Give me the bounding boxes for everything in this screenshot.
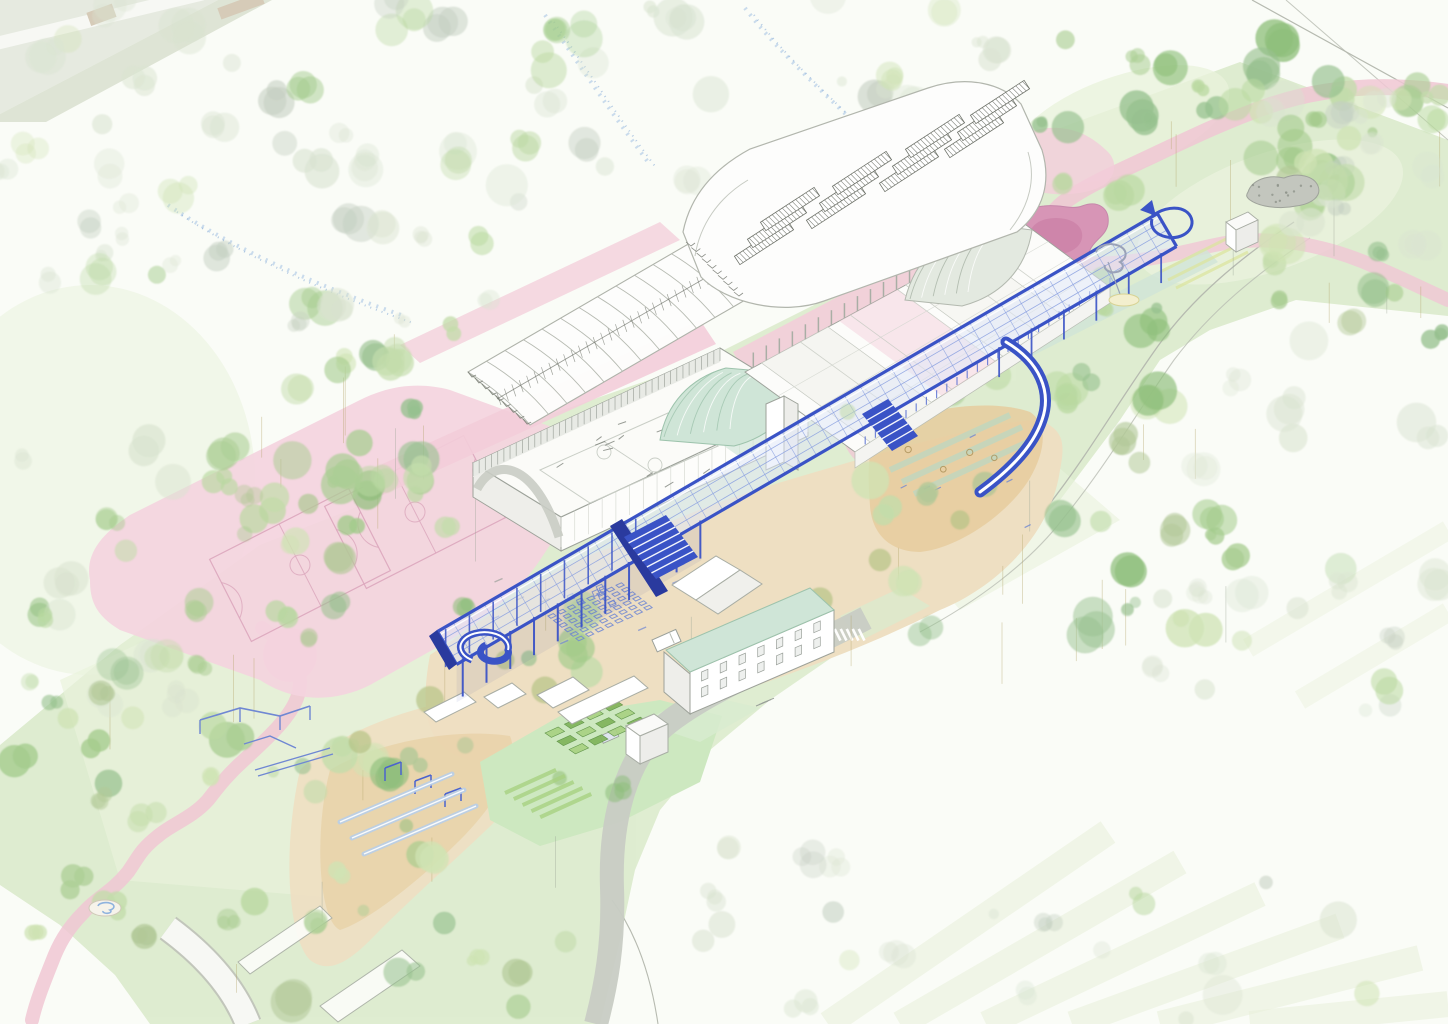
tree-canopy xyxy=(292,317,307,332)
tree-canopy xyxy=(1054,383,1081,410)
rock-dot xyxy=(1285,191,1287,193)
tree-canopy xyxy=(1204,952,1227,975)
tree-canopy xyxy=(1122,603,1134,615)
tree-canopy xyxy=(310,918,325,933)
tree-canopy xyxy=(281,535,300,554)
tree-canopy xyxy=(329,592,350,613)
tree-canopy xyxy=(506,995,530,1019)
tree-canopy xyxy=(399,315,411,327)
tree-canopy xyxy=(415,841,446,872)
tree-canopy xyxy=(80,217,101,238)
tree-canopy xyxy=(675,169,700,194)
tree-canopy xyxy=(403,463,433,493)
tree-canopy xyxy=(1152,665,1169,682)
tree-canopy xyxy=(837,76,847,86)
tree-canopy xyxy=(130,803,153,826)
tree-canopy xyxy=(1320,901,1357,938)
tree-canopy xyxy=(39,272,61,294)
tree-canopy xyxy=(88,729,111,752)
tree-canopy xyxy=(61,864,85,888)
tree-canopy xyxy=(1363,91,1385,113)
tree-canopy xyxy=(468,226,488,246)
tree-canopy xyxy=(301,631,317,647)
tree-canopy xyxy=(260,483,289,512)
tree-canopy xyxy=(1305,111,1321,127)
tree-canopy xyxy=(486,164,528,206)
tree-canopy xyxy=(1244,141,1279,176)
rock-dot xyxy=(1300,185,1302,187)
tree-canopy xyxy=(1361,132,1383,154)
tree-canopy xyxy=(208,438,240,470)
tree-canopy xyxy=(1093,941,1110,958)
tree-canopy xyxy=(443,316,459,332)
tree-canopy xyxy=(1380,628,1396,644)
tree-canopy xyxy=(25,41,57,73)
tree-canopy xyxy=(1371,668,1397,694)
tree-canopy xyxy=(290,71,317,98)
rock-dot xyxy=(1275,201,1277,203)
tree-canopy xyxy=(1034,913,1053,932)
tree-canopy xyxy=(400,747,418,765)
tree-canopy xyxy=(1325,101,1352,128)
tree-canopy xyxy=(474,949,490,965)
tree-canopy xyxy=(298,494,318,514)
tree-canopy xyxy=(839,950,859,970)
tree-canopy xyxy=(1427,109,1448,131)
tree-canopy xyxy=(1056,30,1075,49)
tree-canopy xyxy=(1195,679,1215,699)
tree-canopy xyxy=(216,468,232,484)
tree-canopy xyxy=(241,493,255,507)
tree-canopy xyxy=(873,504,895,526)
tree-canopy xyxy=(295,758,311,774)
tree-canopy xyxy=(131,928,147,944)
tree-canopy xyxy=(886,67,903,84)
tree-canopy xyxy=(1259,876,1273,890)
tree-canopy xyxy=(337,515,357,535)
tree-canopy xyxy=(241,888,269,916)
tree-canopy xyxy=(115,540,137,562)
tree-canopy xyxy=(179,176,198,195)
tree-canopy xyxy=(1049,505,1081,537)
tree-canopy xyxy=(400,819,414,833)
tree-canopy xyxy=(1203,975,1243,1015)
tree-canopy xyxy=(518,131,541,154)
tree-canopy xyxy=(693,76,729,112)
tree-canopy xyxy=(186,601,207,622)
tree-canopy xyxy=(1131,109,1158,136)
tree-canopy xyxy=(1386,284,1404,302)
rock-dot xyxy=(1287,194,1289,196)
tree-canopy xyxy=(1189,613,1223,647)
tree-canopy xyxy=(367,212,400,245)
rock-dot xyxy=(1271,194,1273,196)
tree-canopy xyxy=(1277,115,1304,142)
tree-canopy xyxy=(1113,174,1144,205)
tree-canopy xyxy=(1359,704,1372,717)
tree-canopy xyxy=(358,905,370,917)
tree-canopy xyxy=(1296,208,1325,237)
site-plan-canvas xyxy=(0,0,1448,1024)
tree-canopy xyxy=(709,911,736,938)
tree-canopy xyxy=(189,656,207,674)
tree-canopy xyxy=(822,901,844,923)
tree-canopy xyxy=(321,466,360,505)
tree-canopy xyxy=(1353,109,1368,124)
tree-canopy xyxy=(1173,611,1189,627)
tree-canopy xyxy=(457,737,473,753)
tree-canopy xyxy=(401,399,421,419)
tree-canopy xyxy=(1235,576,1268,609)
tree-canopy xyxy=(1187,452,1221,486)
tree-canopy xyxy=(1373,246,1385,258)
tree-canopy xyxy=(1129,887,1143,901)
rock-dot xyxy=(1279,200,1281,202)
tree-canopy xyxy=(1055,173,1073,191)
tree-canopy xyxy=(972,37,982,47)
tree-canopy xyxy=(1126,50,1138,62)
tree-canopy xyxy=(1229,369,1252,392)
tree-canopy xyxy=(442,517,460,535)
tree-canopy xyxy=(851,462,889,500)
tree-canopy xyxy=(413,226,429,242)
tree-canopy xyxy=(155,464,191,500)
tree-canopy xyxy=(226,723,254,751)
tree-canopy xyxy=(339,128,354,143)
tree-canopy xyxy=(202,115,225,138)
tree-canopy xyxy=(173,21,206,54)
tree-canopy xyxy=(1421,91,1434,104)
tree-canopy xyxy=(92,794,108,810)
tree-canopy xyxy=(223,54,241,72)
tree-canopy xyxy=(370,757,403,790)
tree-canopy xyxy=(840,404,856,420)
tree-canopy xyxy=(531,52,567,88)
tree-canopy xyxy=(89,258,117,286)
tree-canopy xyxy=(11,132,35,156)
tree-canopy xyxy=(349,731,372,754)
tree-canopy xyxy=(1398,230,1427,259)
tree-canopy xyxy=(1153,589,1172,608)
tree-canopy xyxy=(1290,321,1329,360)
tree-canopy xyxy=(665,7,686,28)
tree-canopy xyxy=(370,465,394,489)
tree-canopy xyxy=(304,780,328,804)
tree-canopy xyxy=(92,114,112,134)
tree-canopy xyxy=(502,959,530,987)
tree-canopy xyxy=(1312,65,1345,98)
tree-canopy xyxy=(717,836,741,860)
tree-canopy xyxy=(317,292,346,321)
tree-canopy xyxy=(614,782,631,799)
tree-canopy xyxy=(216,241,233,258)
tree-canopy xyxy=(1052,111,1084,143)
tree-canopy xyxy=(1160,524,1183,547)
rock-dot xyxy=(1293,190,1295,192)
tree-canopy xyxy=(119,193,139,213)
tree-canopy xyxy=(50,696,63,709)
tree-canopy xyxy=(1132,385,1163,416)
tree-canopy xyxy=(596,157,614,175)
tree-canopy xyxy=(794,989,818,1013)
tree-canopy xyxy=(58,708,79,729)
tree-canopy xyxy=(1078,611,1115,648)
tree-canopy xyxy=(273,441,311,479)
tree-canopy xyxy=(908,622,932,646)
tree-canopy xyxy=(1274,394,1305,425)
tree-canopy xyxy=(1421,165,1444,188)
tree-canopy xyxy=(1358,272,1390,304)
tree-canopy xyxy=(918,482,938,502)
rock-dot xyxy=(1252,184,1254,186)
tree-canopy xyxy=(115,227,128,240)
tree-canopy xyxy=(1337,126,1361,150)
tree-canopy xyxy=(346,430,373,457)
rock-dot xyxy=(1258,194,1260,196)
site-plan-rendering xyxy=(0,0,1448,1024)
tree-canopy xyxy=(1073,363,1091,381)
tree-canopy xyxy=(328,861,346,879)
tree-canopy xyxy=(333,203,364,234)
tree-canopy xyxy=(1109,428,1136,455)
tree-canopy xyxy=(869,549,891,571)
tree-canopy xyxy=(433,912,456,935)
tree-canopy xyxy=(828,848,845,865)
tree-canopy xyxy=(1242,79,1265,102)
tree-canopy xyxy=(1153,50,1188,85)
tree-canopy xyxy=(95,507,118,530)
tree-canopy xyxy=(21,673,38,690)
tree-canopy xyxy=(477,293,492,308)
tree-canopy xyxy=(1016,981,1035,1000)
tree-canopy xyxy=(170,255,181,266)
tree-canopy xyxy=(1090,511,1111,532)
tree-canopy xyxy=(1192,79,1205,92)
tree-canopy xyxy=(272,131,297,156)
tree-canopy xyxy=(114,659,140,685)
tree-canopy xyxy=(354,149,376,171)
tree-canopy xyxy=(324,357,351,384)
tree-canopy xyxy=(575,138,599,162)
tree-canopy xyxy=(386,349,414,377)
tree-canopy xyxy=(38,608,53,623)
tree-canopy xyxy=(266,600,288,622)
tree-canopy xyxy=(54,561,88,595)
rock-dot xyxy=(1277,185,1279,187)
tree-canopy xyxy=(1222,548,1245,571)
tree-canopy xyxy=(94,148,125,179)
rock-dot xyxy=(1258,186,1260,188)
tree-canopy xyxy=(1434,328,1447,341)
tree-canopy xyxy=(707,889,722,904)
tree-canopy xyxy=(407,962,426,981)
tree-canopy xyxy=(1151,303,1162,314)
tree-canopy xyxy=(879,942,899,962)
tree-canopy xyxy=(545,19,567,41)
tree-canopy xyxy=(985,37,1011,63)
tree-canopy xyxy=(1037,116,1048,127)
tree-canopy xyxy=(566,20,603,57)
tree-canopy xyxy=(1397,403,1437,443)
tree-canopy xyxy=(122,66,145,89)
tree-canopy xyxy=(1331,584,1347,600)
tree-canopy xyxy=(1206,505,1237,536)
tree-canopy xyxy=(1189,582,1205,598)
tree-canopy xyxy=(1110,552,1144,586)
tree-canopy xyxy=(1287,597,1309,619)
tree-canopy xyxy=(888,566,919,597)
tree-canopy xyxy=(288,375,314,401)
tree-canopy xyxy=(15,448,29,462)
tree-canopy xyxy=(800,840,826,866)
tree-canopy xyxy=(445,147,472,174)
tree-canopy xyxy=(237,526,252,541)
tree-canopy xyxy=(132,424,165,457)
tree-canopy xyxy=(159,645,183,669)
tree-canopy xyxy=(309,148,333,172)
tree-canopy xyxy=(217,909,239,931)
tree-canopy xyxy=(167,685,186,704)
tree-canopy xyxy=(950,510,969,529)
rock-dot xyxy=(1310,185,1312,187)
tree-canopy xyxy=(28,924,43,939)
tree-canopy xyxy=(1341,309,1366,334)
tree-canopy xyxy=(324,542,354,572)
tree-canopy xyxy=(121,706,144,729)
tree-canopy xyxy=(555,931,577,953)
tree-canopy xyxy=(1232,631,1252,651)
tree-canopy xyxy=(203,770,219,786)
tree-canopy xyxy=(1271,292,1288,309)
tree-canopy xyxy=(543,89,568,114)
slide-landing xyxy=(1109,294,1139,306)
tree-canopy xyxy=(566,634,595,663)
tree-canopy xyxy=(989,909,999,919)
tree-canopy xyxy=(692,930,714,952)
tree-canopy xyxy=(100,686,115,701)
tree-canopy xyxy=(1354,981,1379,1006)
tree-canopy xyxy=(271,981,312,1022)
tree-canopy xyxy=(1129,452,1151,474)
